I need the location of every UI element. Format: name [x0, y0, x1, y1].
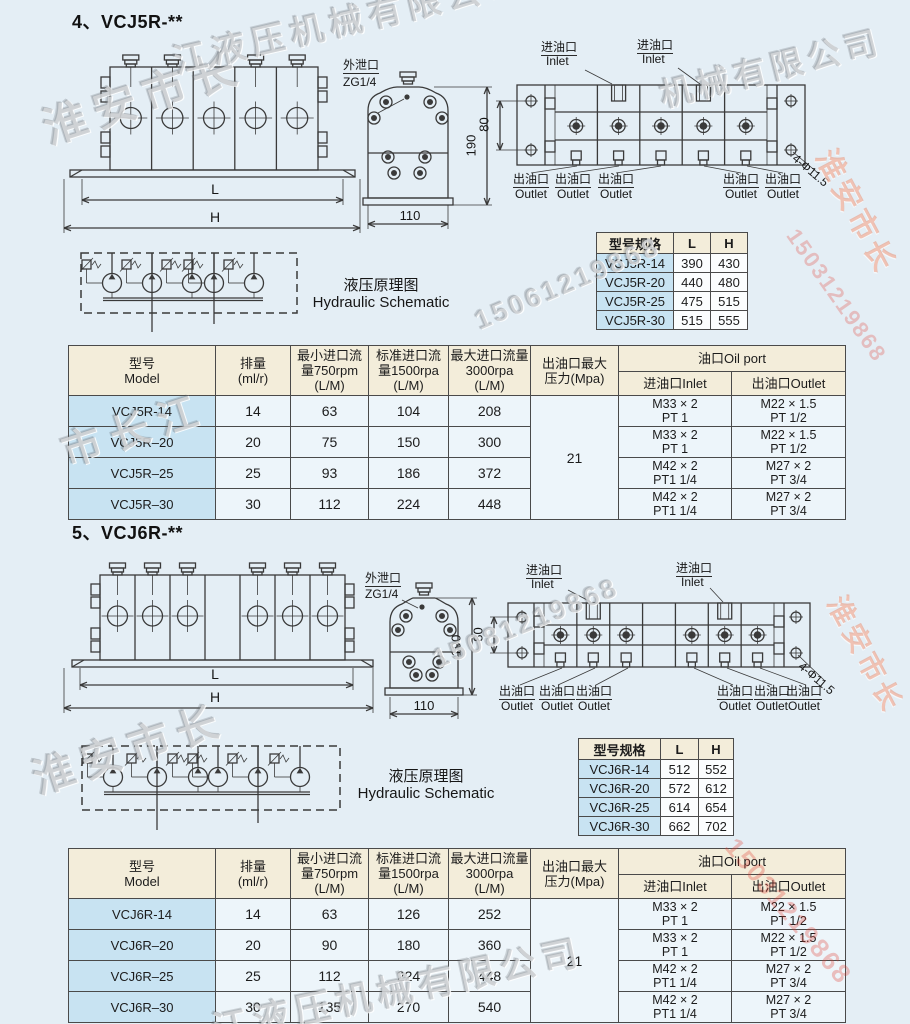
vcj6r-data-table: 型号Model 排量(ml/r) 最小进口流量750rpm(L/M) 标准进口流…: [68, 848, 846, 1023]
max-flow-cell: 540: [449, 992, 531, 1023]
L-cell: 390: [674, 254, 711, 273]
model-cell: VCJ6R-20: [579, 779, 661, 798]
std-flow-cell: 224: [369, 961, 449, 992]
max-flow-cell: 360: [449, 930, 531, 961]
outlet-cell: M22 × 1.5PT 1/2: [732, 396, 846, 427]
L-cell: 614: [661, 798, 699, 817]
max-flow-cell: 252: [449, 899, 531, 930]
model-cell: VCJ6R-30: [579, 817, 661, 836]
min-flow-cell: 63: [291, 899, 369, 930]
col-header-pressure: 出油口最大压力(Mpa): [531, 346, 619, 396]
H-cell: 555: [711, 311, 748, 330]
min-flow-cell: 112: [291, 961, 369, 992]
section4-title: 4、VCJ5R-**: [72, 8, 183, 34]
col-header-max-flow: 最大进口流量3000rpa(L/M): [449, 849, 531, 899]
H-cell: 430: [711, 254, 748, 273]
displacement-cell: 14: [216, 899, 291, 930]
displacement-cell: 14: [216, 396, 291, 427]
table-header-row: 型号Model 排量(ml/r) 最小进口流量750rpm(L/M) 标准进口流…: [69, 346, 846, 372]
dim-80: 80: [478, 105, 491, 145]
inlet-label-en: Inlet: [546, 55, 569, 68]
table-row: VCJ5R-14 14 63 104 208 21 M33 × 2PT 1 M2…: [69, 396, 846, 427]
model-cell: VCJ5R–25: [69, 458, 216, 489]
std-flow-cell: 224: [369, 489, 449, 520]
col-header-min-flow: 最小进口流量750rpm(L/M): [291, 849, 369, 899]
outlet-label-cn: 出油口: [588, 173, 644, 186]
max-flow-cell: 448: [449, 489, 531, 520]
table-row: VCJ5R–20 20 75 150 300 M33 × 2PT 1 M22 ×…: [69, 427, 846, 458]
table-row: VCJ6R-20 572 612: [579, 779, 734, 798]
L-cell: 475: [674, 292, 711, 311]
table-row: VCJ6R-14 512 552: [579, 760, 734, 779]
table-row: VCJ5R–30 30 112 224 448 M42 × 2PT1 1/4 M…: [69, 489, 846, 520]
schematic-label-en: Hydraulic Schematic: [300, 294, 462, 311]
leak-port-label: 外泄口: [343, 59, 379, 74]
H-cell: 612: [699, 779, 734, 798]
pressure-cell: 21: [531, 899, 619, 1023]
displacement-cell: 25: [216, 458, 291, 489]
table-row: VCJ5R-30 515 555: [597, 311, 748, 330]
dim-L: L: [190, 183, 240, 196]
schematic-label: 液压原理图 Hydraulic Schematic: [347, 768, 505, 802]
col-header-outlet: 出油口Outlet: [732, 372, 846, 396]
outlet-label-cn: 出油口: [566, 685, 622, 698]
col-header-displacement: 排量(ml/r): [216, 346, 291, 396]
vcj6r-size-table: 型号规格 L H VCJ6R-14 512 552 VCJ6R-20 572 6…: [578, 738, 734, 836]
outlet-label-cn: 出油口: [755, 173, 811, 186]
inlet-cell: M42 × 2PT1 1/4: [619, 961, 732, 992]
leak-port-label: 外泄口: [365, 572, 401, 587]
dim-110: 110: [388, 209, 432, 222]
outlet-cell: M27 × 2PT 3/4: [732, 992, 846, 1023]
table-header-row: 型号规格 L H: [579, 739, 734, 760]
model-cell: VCJ5R-14: [69, 396, 216, 427]
outlet-cell: M27 × 2PT 3/4: [732, 458, 846, 489]
datasheet-page: 4、VCJ5R-** 5、VCJ6R-** 外泄口 ZG1/4 110 190 …: [0, 0, 910, 1024]
max-flow-cell: 300: [449, 427, 531, 458]
col-header: H: [711, 233, 748, 254]
inlet-cell: M42 × 2PT1 1/4: [619, 992, 732, 1023]
col-header-oil-port: 油口Oil port: [619, 849, 846, 875]
std-flow-cell: 126: [369, 899, 449, 930]
model-cell: VCJ5R-30: [597, 311, 674, 330]
table-row: VCJ5R-20 440 480: [597, 273, 748, 292]
dim-L: L: [190, 668, 240, 681]
min-flow-cell: 93: [291, 458, 369, 489]
table-row: VCJ6R-30 662 702: [579, 817, 734, 836]
schematic-label-cn: 液压原理图: [347, 768, 505, 785]
inlet-cell: M33 × 2PT 1: [619, 427, 732, 458]
H-cell: 702: [699, 817, 734, 836]
table-row: VCJ5R-14 390 430: [597, 254, 748, 273]
col-header: 型号规格: [597, 233, 674, 254]
model-cell: VCJ6R–20: [69, 930, 216, 961]
std-flow-cell: 270: [369, 992, 449, 1023]
table-row: VCJ6R-14 14 63 126 252 21 M33 × 2PT 1 M2…: [69, 899, 846, 930]
vcj5r-size-table: 型号规格 L H VCJ5R-14 390 430 VCJ5R-20 440 4…: [596, 232, 748, 330]
col-header-std-flow: 标准进口流量1500rpa(L/M): [369, 849, 449, 899]
model-cell: VCJ5R-14: [597, 254, 674, 273]
inlet-cell: M33 × 2PT 1: [619, 396, 732, 427]
model-cell: VCJ6R-25: [579, 798, 661, 817]
model-cell: VCJ5R–20: [69, 427, 216, 458]
max-flow-cell: 208: [449, 396, 531, 427]
outlet-label-en: Outlet: [566, 700, 622, 713]
H-cell: 552: [699, 760, 734, 779]
leak-thread-label: ZG1/4: [365, 588, 398, 601]
min-flow-cell: 90: [291, 930, 369, 961]
model-cell: VCJ6R-14: [69, 899, 216, 930]
max-flow-cell: 372: [449, 458, 531, 489]
pressure-cell: 21: [531, 396, 619, 520]
table-row: VCJ5R-25 475 515: [597, 292, 748, 311]
model-cell: VCJ6R–25: [69, 961, 216, 992]
std-flow-cell: 150: [369, 427, 449, 458]
inlet-cell: M33 × 2PT 1: [619, 930, 732, 961]
model-cell: VCJ6R-14: [579, 760, 661, 779]
dim-H: H: [190, 211, 240, 224]
displacement-cell: 30: [216, 489, 291, 520]
displacement-cell: 30: [216, 992, 291, 1023]
L-cell: 440: [674, 273, 711, 292]
outlet-cell: M27 × 2PT 3/4: [732, 961, 846, 992]
inlet-label-en: Inlet: [531, 578, 554, 591]
col-header-inlet: 进油口Inlet: [619, 372, 732, 396]
outlet-label-en: Outlet: [755, 188, 811, 201]
col-header-pressure: 出油口最大压力(Mpa): [531, 849, 619, 899]
table-row: VCJ6R-25 614 654: [579, 798, 734, 817]
dim-110: 110: [402, 699, 446, 712]
model-cell: VCJ6R–30: [69, 992, 216, 1023]
dim-190: 190: [450, 626, 463, 666]
outlet-label-en: Outlet: [588, 188, 644, 201]
H-cell: 515: [711, 292, 748, 311]
min-flow-cell: 135: [291, 992, 369, 1023]
std-flow-cell: 186: [369, 458, 449, 489]
dim-80: 80: [472, 615, 485, 655]
table-header-row: 型号规格 L H: [597, 233, 748, 254]
std-flow-cell: 104: [369, 396, 449, 427]
outlet-cell: M22 × 1.5PT 1/2: [732, 899, 846, 930]
table-row: VCJ6R–30 30 135 270 540 M42 × 2PT1 1/4 M…: [69, 992, 846, 1023]
col-header-oil-port: 油口Oil port: [619, 346, 846, 372]
model-cell: VCJ5R-20: [597, 273, 674, 292]
inlet-cell: M33 × 2PT 1: [619, 899, 732, 930]
dim-H: H: [190, 691, 240, 704]
section5-title: 5、VCJ6R-**: [72, 519, 183, 545]
displacement-cell: 20: [216, 930, 291, 961]
col-header-max-flow: 最大进口流量3000rpa(L/M): [449, 346, 531, 396]
outlet-cell: M22 × 1.5PT 1/2: [732, 930, 846, 961]
inlet-cell: M42 × 2PT1 1/4: [619, 458, 732, 489]
col-header: L: [661, 739, 699, 760]
table-header-row: 型号Model 排量(ml/r) 最小进口流量750rpm(L/M) 标准进口流…: [69, 849, 846, 875]
L-cell: 515: [674, 311, 711, 330]
col-header: 型号规格: [579, 739, 661, 760]
inlet-cell: M42 × 2PT1 1/4: [619, 489, 732, 520]
col-header: H: [699, 739, 734, 760]
col-header-model: 型号Model: [69, 346, 216, 396]
outlet-cell: M27 × 2PT 3/4: [732, 489, 846, 520]
col-header-model: 型号Model: [69, 849, 216, 899]
col-header-displacement: 排量(ml/r): [216, 849, 291, 899]
max-flow-cell: 448: [449, 961, 531, 992]
outlet-label-en: Outlet: [776, 700, 832, 713]
min-flow-cell: 63: [291, 396, 369, 427]
outlet-cell: M22 × 1.5PT 1/2: [732, 427, 846, 458]
inlet-label-en: Inlet: [681, 576, 704, 589]
model-cell: VCJ5R-25: [597, 292, 674, 311]
col-header-outlet: 出油口Outlet: [732, 875, 846, 899]
col-header-std-flow: 标准进口流量1500rpa(L/M): [369, 346, 449, 396]
displacement-cell: 20: [216, 427, 291, 458]
col-header: L: [674, 233, 711, 254]
H-cell: 480: [711, 273, 748, 292]
table-row: VCJ6R–25 25 112 224 448 M42 × 2PT1 1/4 M…: [69, 961, 846, 992]
leak-thread-label: ZG1/4: [343, 76, 376, 89]
col-header-min-flow: 最小进口流量750rpm(L/M): [291, 346, 369, 396]
schematic-label-en: Hydraulic Schematic: [347, 785, 505, 802]
col-header-inlet: 进油口Inlet: [619, 875, 732, 899]
vcj5r-data-table: 型号Model 排量(ml/r) 最小进口流量750rpm(L/M) 标准进口流…: [68, 345, 846, 520]
H-cell: 654: [699, 798, 734, 817]
model-cell: VCJ5R–30: [69, 489, 216, 520]
dim-190: 190: [465, 126, 478, 166]
min-flow-cell: 75: [291, 427, 369, 458]
L-cell: 572: [661, 779, 699, 798]
table-row: VCJ5R–25 25 93 186 372 M42 × 2PT1 1/4 M2…: [69, 458, 846, 489]
std-flow-cell: 180: [369, 930, 449, 961]
L-cell: 512: [661, 760, 699, 779]
displacement-cell: 25: [216, 961, 291, 992]
min-flow-cell: 112: [291, 489, 369, 520]
table-row: VCJ6R–20 20 90 180 360 M33 × 2PT 1 M22 ×…: [69, 930, 846, 961]
schematic-label: 液压原理图 Hydraulic Schematic: [300, 277, 462, 311]
inlet-label-en: Inlet: [642, 53, 665, 66]
schematic-label-cn: 液压原理图: [300, 277, 462, 294]
L-cell: 662: [661, 817, 699, 836]
